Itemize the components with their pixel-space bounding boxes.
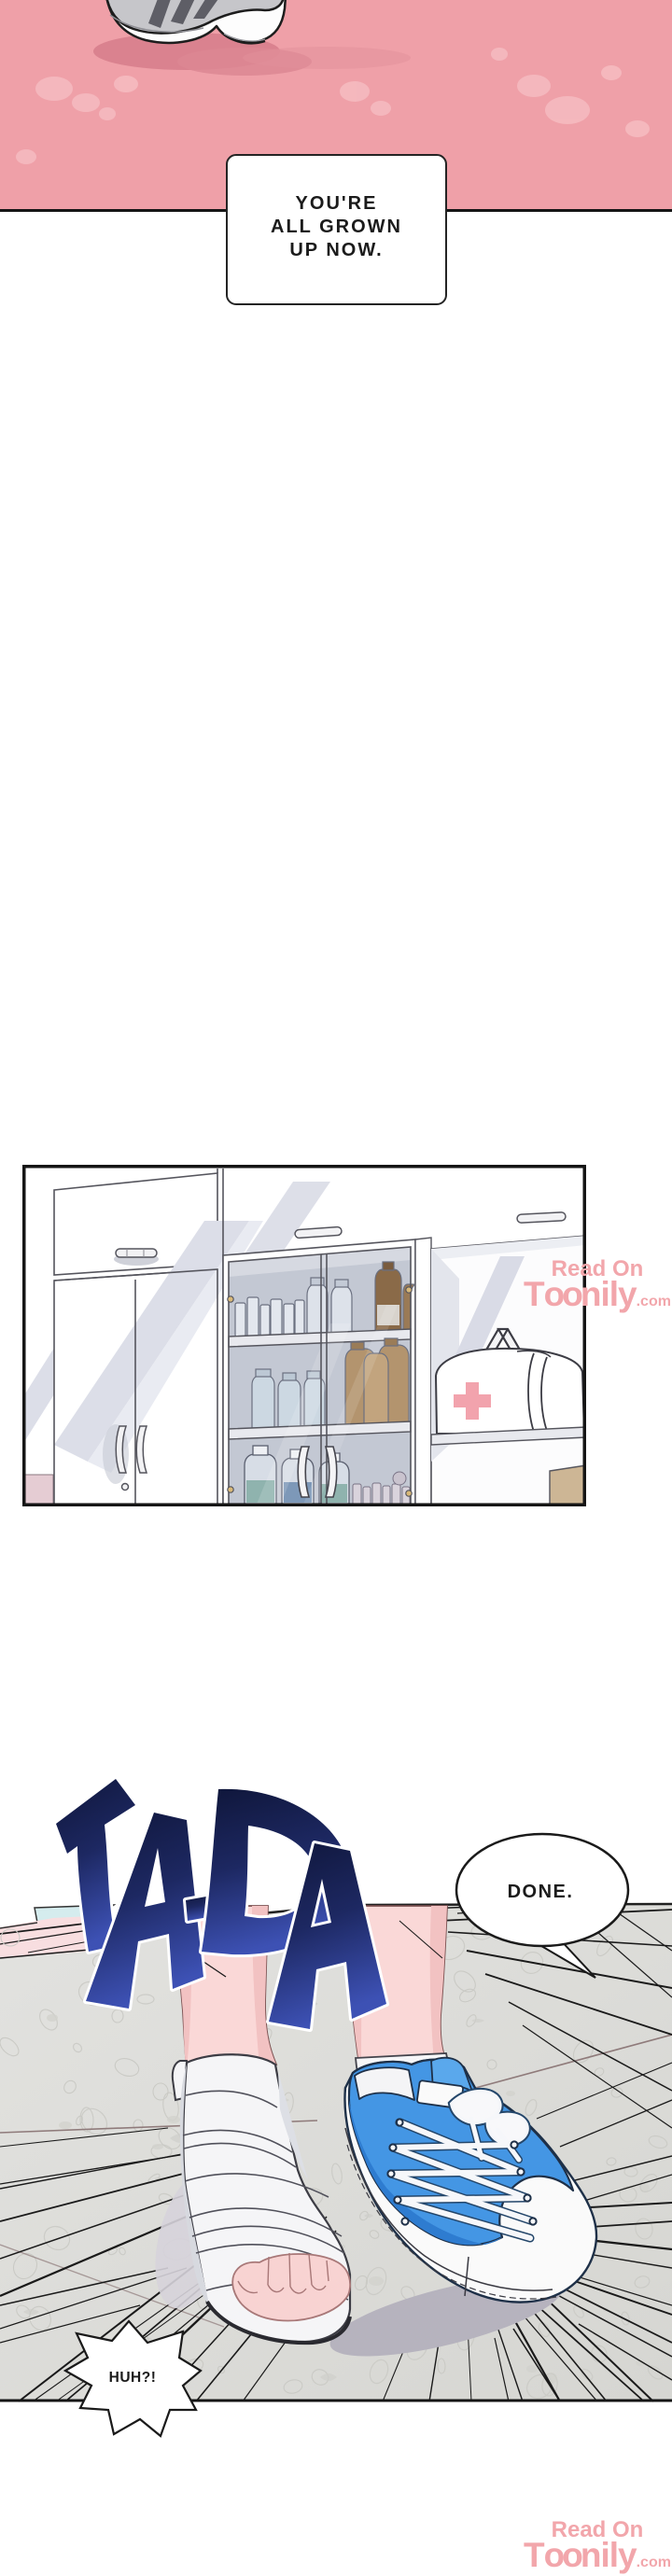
svg-text:DONE.: DONE. [508,1882,574,1902]
svg-text:HUH?!: HUH?! [109,2370,157,2386]
